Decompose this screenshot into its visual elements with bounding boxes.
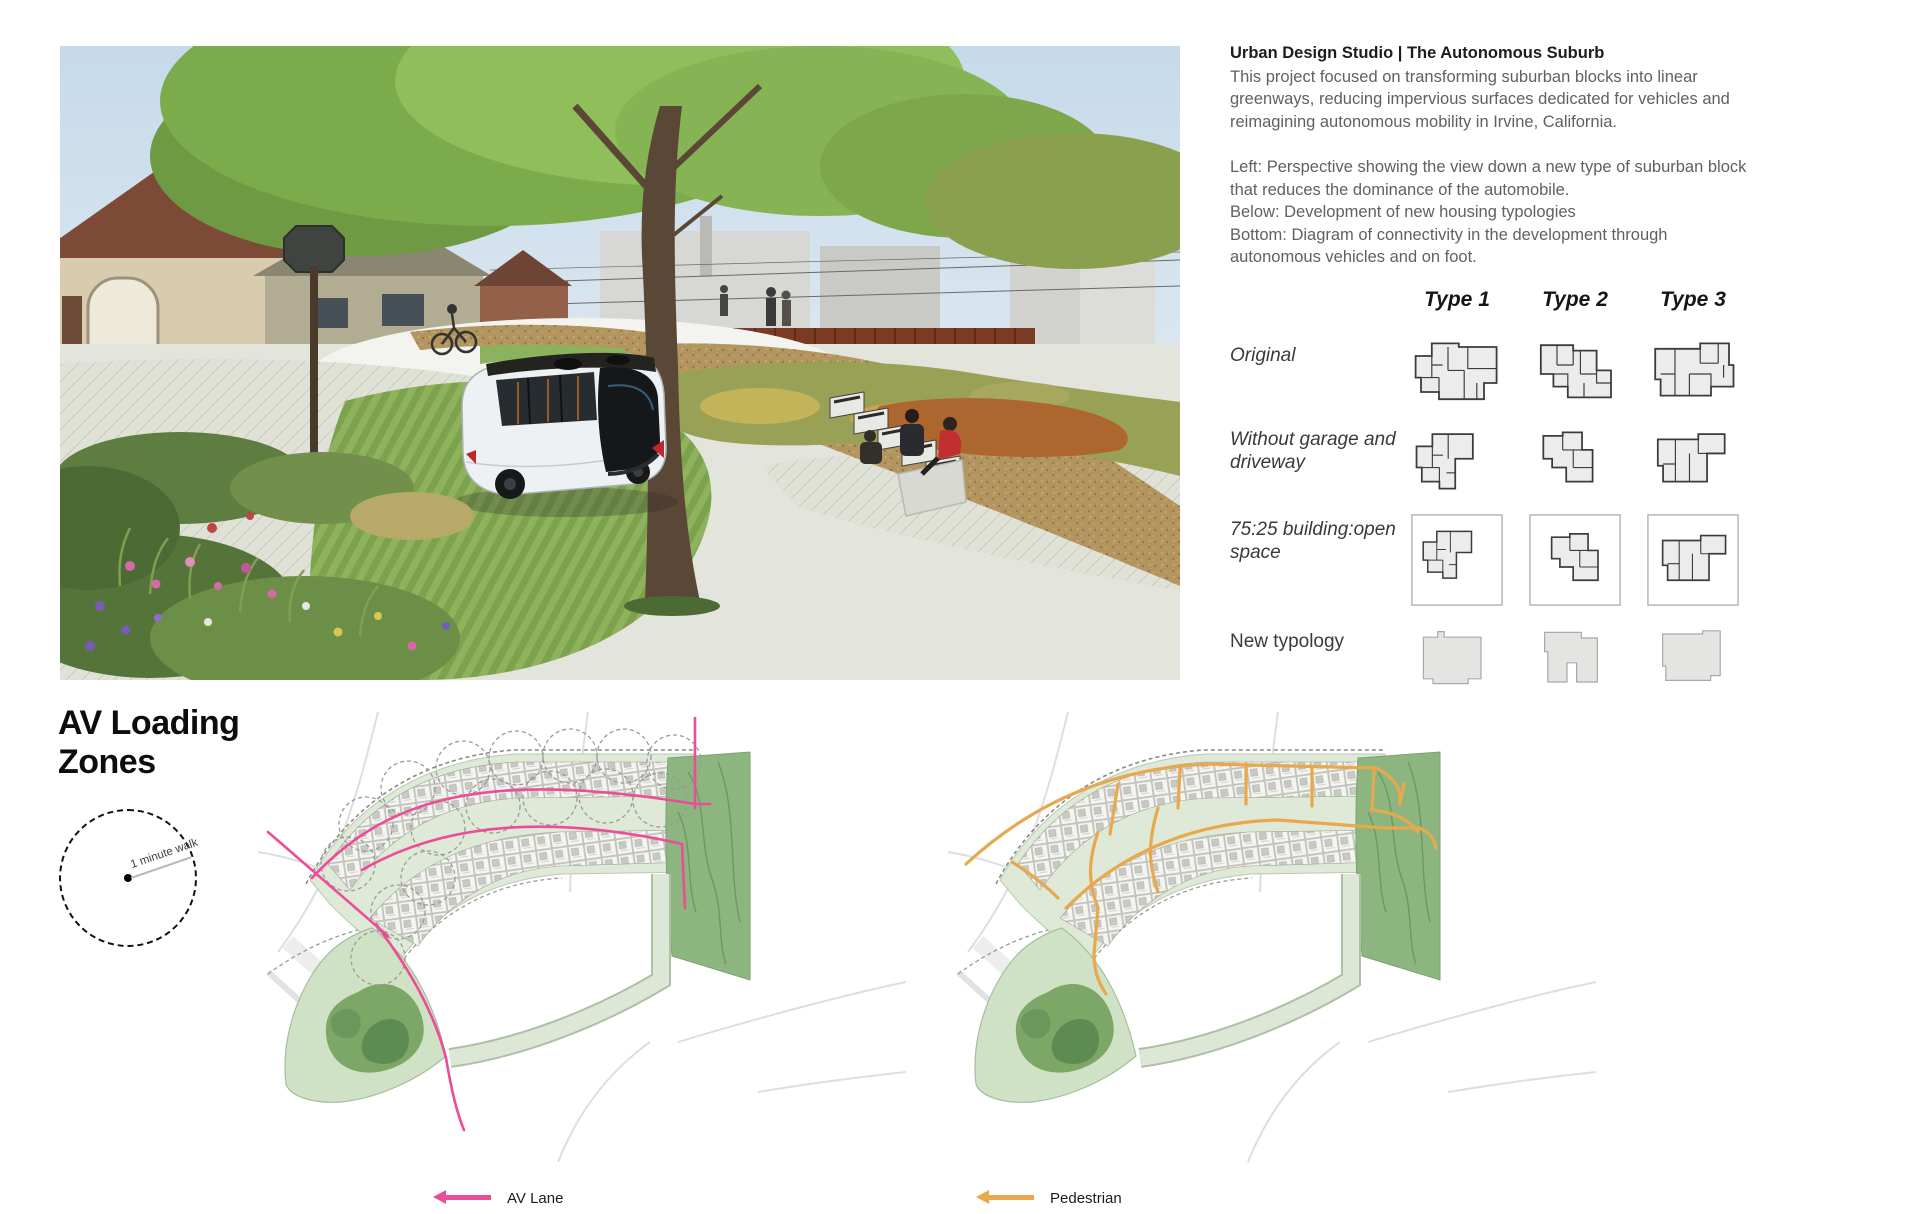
caption-block: Left: Perspective showing the view down … (1230, 156, 1750, 269)
plan-7525-type3 (1647, 514, 1739, 606)
column-header-type-3: Type 3 (1634, 288, 1752, 312)
plan-7525-type1 (1411, 514, 1503, 606)
arrow-bar (442, 1195, 491, 1200)
project-title: Urban Design Studio | The Autonomous Sub… (1230, 42, 1750, 65)
perspective-rendering (60, 46, 1180, 680)
row-label-75-25: 75:25 building:open space (1230, 518, 1425, 564)
plan-nogarage-type1 (1413, 428, 1501, 500)
column-header-type-1: Type 1 (1398, 288, 1516, 312)
caption-left: Left: Perspective showing the view down … (1230, 156, 1750, 201)
plan-original-type3 (1648, 338, 1738, 410)
autonomous-shuttle (454, 353, 678, 517)
legend-pedestrian-label: Pedestrian (1050, 1190, 1122, 1207)
row-label-original: Original (1230, 344, 1425, 367)
caption-below: Below: Development of new housing typolo… (1230, 201, 1750, 224)
plan-original-type1 (1412, 338, 1502, 410)
legend-av-lane-label: AV Lane (507, 1190, 563, 1207)
typology-column-headers: Type 1 Type 2 Type 3 (1398, 288, 1752, 312)
presentation-board: Urban Design Studio | The Autonomous Sub… (0, 0, 1920, 1214)
perspective-scene (60, 46, 1180, 680)
plan-nogarage-type2 (1531, 428, 1619, 500)
intro-text-block: Urban Design Studio | The Autonomous Sub… (1230, 42, 1750, 269)
av-lane-arrow-icon (433, 1190, 491, 1204)
row-label-new-typology: New typology (1230, 630, 1425, 653)
siteplan-av-lanes (258, 712, 906, 1164)
pedestrian-arrow-icon (976, 1190, 1034, 1204)
plan-newtypology-type2 (1535, 625, 1615, 691)
plan-nogarage-type3 (1649, 428, 1737, 500)
arrow-bar (985, 1195, 1034, 1200)
plan-original-type2 (1530, 338, 1620, 410)
row-label-without-garage: Without garage and driveway (1230, 428, 1425, 474)
column-header-type-2: Type 2 (1516, 288, 1634, 312)
floor-plan-grid (1398, 330, 1752, 706)
caption-bottom: Bottom: Diagram of connectivity in the d… (1230, 224, 1750, 269)
siteplan-pedestrian (948, 712, 1596, 1164)
plan-newtypology-type3 (1653, 625, 1733, 691)
meadow-grass-patch (700, 388, 820, 424)
plan-7525-type2 (1529, 514, 1621, 606)
plan-newtypology-type1 (1417, 625, 1497, 691)
project-description: This project focused on transforming sub… (1230, 66, 1750, 134)
